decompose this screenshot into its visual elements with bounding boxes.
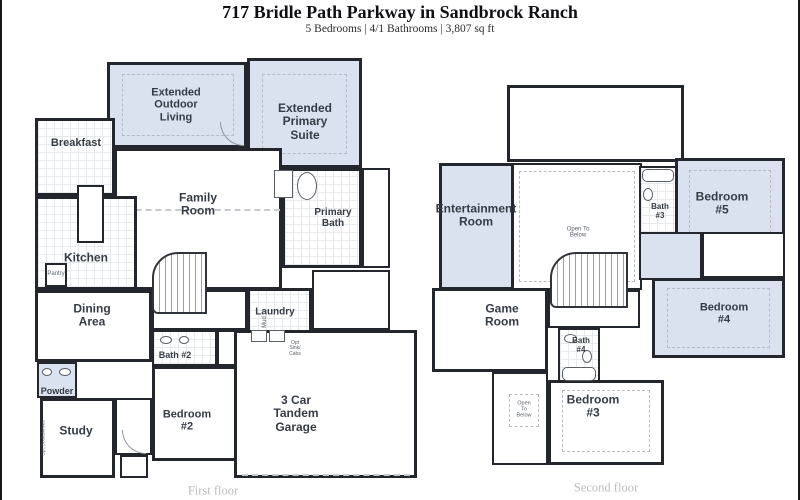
bath3-toilet-fixture — [643, 188, 653, 201]
bath-3-label: Bath #3 — [651, 203, 669, 221]
opt-sink-cabs-label: Opt Sink/ Cabs — [289, 341, 301, 357]
extended-outdoor-living-label: Extended Outdoor Living — [151, 87, 201, 124]
extended-primary-suite-label: Extended Primary Suite — [278, 102, 332, 142]
second-floor-caption: Second floor — [574, 481, 638, 496]
dryer-fixture — [269, 330, 285, 342]
washer-fixture — [251, 330, 267, 342]
study-label: Study — [59, 424, 92, 437]
bathtub-fixture — [297, 172, 317, 200]
breakfast-label: Breakfast — [51, 137, 101, 149]
bath-4-label: Bath #4 — [572, 337, 590, 355]
upstairs-hall — [639, 232, 702, 280]
kitchen-label: Kitchen — [64, 251, 108, 264]
room-garage — [234, 330, 417, 478]
bath2-sink-fixture — [160, 336, 172, 344]
powder-sink-fixture — [59, 368, 71, 376]
bath-2-label: Bath #2 — [159, 350, 192, 360]
water-closet — [362, 168, 390, 268]
open-to-below-lower-label: Open To Below — [517, 401, 532, 418]
mud-hall — [312, 270, 390, 330]
powder-toilet-fixture — [42, 368, 52, 376]
first-floor-caption: First floor — [188, 484, 238, 499]
page-title: 717 Bridle Path Parkway in Sandbrock Ran… — [2, 2, 798, 23]
bath2-toilet-fixture — [179, 336, 189, 344]
bath4-tub-fixture — [562, 367, 596, 381]
bedroom-4-label: Bedroom #4 — [700, 302, 748, 327]
pantry-label: Pantry — [47, 271, 64, 277]
page-subtitle: 5 Bedrooms | 4/1 Bathrooms | 3,807 sq ft — [2, 23, 798, 35]
bedroom-5-label: Bedroom #5 — [696, 191, 749, 218]
shower-fixture — [274, 170, 293, 198]
dining-area-label: Dining Area — [73, 303, 110, 330]
floorplan-image: 717 Bridle Path Parkway in Sandbrock Ran… — [0, 0, 800, 500]
room-study — [40, 398, 115, 478]
garage-label: 3 Car Tandem Garage — [273, 394, 318, 434]
open-to-below-upper-label: Open To Below — [567, 227, 590, 240]
garage-door-line — [242, 474, 410, 476]
front-porch — [120, 455, 148, 478]
opt-bookshelves-label: Opt. Bookshelves — [42, 420, 47, 455]
family-room-label: Family Room — [179, 192, 217, 219]
bedroom-2-label: Bedroom #2 — [163, 409, 211, 434]
primary-bath-label: Primary Bath — [314, 207, 351, 229]
closet-strip — [702, 232, 785, 278]
stairs-first-floor — [152, 252, 207, 314]
game-room-label: Game Room — [485, 303, 519, 330]
entertainment-room-label: Entertainment Room — [436, 203, 517, 230]
kitchen-island — [77, 185, 104, 243]
stairs-second-floor — [550, 252, 628, 308]
mud-label: Mud — [262, 316, 268, 328]
second-floor-upper-deck — [507, 85, 684, 162]
bedroom-3-label: Bedroom #3 — [567, 394, 620, 421]
powder-label: Powder — [41, 386, 74, 396]
bath3-tub-fixture — [642, 169, 674, 182]
